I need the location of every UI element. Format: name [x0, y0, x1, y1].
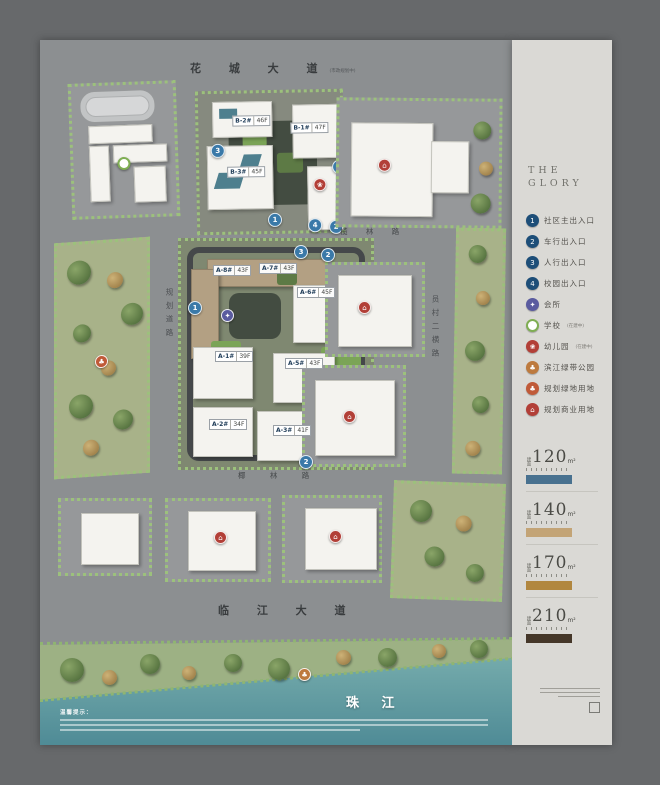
area-caption-dots	[526, 468, 570, 471]
disclaimer-line	[60, 724, 488, 726]
building	[351, 122, 434, 217]
building-label-chip: A-8#43F	[213, 265, 251, 276]
commercial-icon: ⌂	[329, 530, 342, 543]
building-label-chip: B-3#45F	[227, 166, 266, 178]
building	[88, 124, 153, 144]
disclaimer-heading: 温馨提示：	[60, 708, 492, 716]
divider	[526, 544, 598, 545]
footnote-line	[558, 696, 600, 698]
disclaimer-line	[60, 729, 360, 731]
tree	[465, 341, 485, 361]
building	[89, 146, 111, 203]
legend-icon-kindergarten: ❀	[526, 340, 539, 353]
building	[81, 513, 139, 565]
area-color-bar	[526, 634, 572, 643]
school-icon	[117, 157, 130, 170]
legend-item: 1 社区主出入口	[526, 210, 595, 231]
track-infield	[85, 95, 150, 117]
area-prefix: 建面	[526, 563, 531, 572]
tree	[121, 302, 143, 326]
tree	[476, 291, 490, 305]
building-label-chip: A-7#43F	[259, 263, 297, 274]
brand-line1: THE	[528, 164, 583, 177]
tree	[67, 260, 91, 286]
tree	[465, 441, 480, 456]
building-label-chip: A-2#34F	[209, 419, 247, 430]
tree	[336, 650, 351, 665]
disclaimer-text: 温馨提示：	[60, 708, 492, 731]
south-block-4	[390, 480, 506, 602]
tree	[83, 439, 99, 456]
area-value: 210	[532, 608, 567, 625]
entrance-badge: 1	[268, 213, 282, 227]
commercial-icon: ⌂	[378, 159, 391, 172]
legend-item: 3 人行出入口	[526, 252, 595, 273]
commercial-icon: ⌂	[358, 301, 371, 314]
commercial-icon: ⌂	[214, 531, 227, 544]
green-sliver-block	[452, 228, 506, 475]
school-block	[68, 80, 181, 220]
clubhouse-icon: ✦	[221, 309, 234, 322]
tree	[471, 193, 491, 213]
area-color-bar	[526, 475, 572, 484]
south-block-3: ⌂	[282, 495, 382, 583]
riverside-park-icon: ♣	[298, 668, 311, 681]
building-label-chip: A-6#45F	[297, 287, 335, 298]
green-park-block: ♣	[54, 237, 150, 480]
area-value: 120	[532, 449, 567, 466]
tree	[102, 670, 117, 685]
legend-note: (在建中)	[576, 344, 593, 350]
legend-list: 1 社区主出入口 2 车行出入口 3 人行出入口 4 校园出入口 ✦ 会所 学校	[526, 210, 595, 420]
area-prefix: 建面	[526, 616, 531, 625]
building-label-chip: B-1#47F	[290, 122, 329, 134]
area-color-bar	[526, 528, 572, 537]
building-label-chip: A-1#39F	[215, 351, 253, 362]
brand-logo: THE GLORY	[528, 164, 583, 190]
area-caption-dots	[526, 521, 570, 524]
road-label-planned-road: 规划道路	[164, 288, 175, 342]
commercial-icon: ⌂	[343, 410, 356, 423]
road-name: 花 城 大 道	[190, 62, 330, 75]
legend-icon-campus-entrance: 4	[526, 277, 539, 290]
tree	[378, 648, 397, 667]
building-label-chip: A-3#41F	[273, 425, 311, 436]
legend-item: ✦ 会所	[526, 294, 595, 315]
commercial-block-e2: ⌂	[302, 365, 406, 467]
legend-item: 2 车行出入口	[526, 231, 595, 252]
legend-label: 滨江绿带公园	[544, 362, 595, 373]
residential-block-b: B-2#46F B-1#47F B-3#45F 3 3 1 4 2 ❀	[195, 89, 345, 236]
tree	[182, 666, 196, 680]
master-plan-map: 花 城 大 道(市政规划中)	[40, 40, 512, 745]
tree	[432, 644, 446, 658]
legend-panel: THE GLORY 1 社区主出入口 2 车行出入口 3 人行出入口 4 校园出…	[512, 40, 612, 745]
entrance-badge: 3	[294, 245, 308, 259]
commercial-block-ne: ⌂	[335, 97, 502, 228]
legend-label: 社区主出入口	[544, 215, 595, 226]
road-label-huacheng-avenue: 花 城 大 道(市政规划中)	[190, 60, 356, 76]
area-item-120: 建面 120 m²	[526, 446, 598, 492]
legend-label: 车行出入口	[544, 236, 587, 247]
area-caption-dots	[526, 627, 570, 630]
road-label-linjiang-avenue: 临 江 大 道	[218, 602, 358, 618]
tree	[224, 654, 242, 672]
legend-item: ♣ 滨江绿带公园	[526, 357, 595, 378]
tree	[107, 272, 123, 289]
road-label-yuancun: 员村二横路	[430, 295, 441, 363]
legend-item: ❀ 幼儿园 (在建中)	[526, 336, 595, 357]
tree	[60, 658, 84, 682]
area-unit: m²	[567, 564, 575, 571]
area-item-140: 建面 140 m²	[526, 499, 598, 545]
legend-label: 规划商业用地	[544, 404, 595, 415]
tree	[424, 546, 445, 567]
divider	[526, 597, 598, 598]
building	[431, 141, 469, 193]
tree	[466, 564, 485, 583]
legend-label: 幼儿园	[544, 341, 570, 352]
entrance-badge: 1	[188, 301, 202, 315]
legend-note: (在建中)	[567, 323, 584, 329]
footnote-line	[540, 692, 600, 694]
area-unit: m²	[567, 511, 575, 518]
road-note: (市政规划中)	[330, 69, 356, 74]
building	[338, 275, 412, 347]
legend-icon-clubhouse: ✦	[526, 298, 539, 311]
tree	[73, 324, 91, 343]
entrance-badge: 2	[299, 455, 313, 469]
panel-footnote	[530, 685, 600, 713]
legend-icon-riverside-park: ♣	[526, 361, 539, 374]
south-block-2: ⌂	[165, 498, 271, 582]
area-value: 170	[532, 555, 567, 572]
seal-icon	[589, 702, 600, 713]
area-item-210: 建面 210 m²	[526, 605, 598, 643]
legend-item: ♣ 规划绿地用地	[526, 378, 595, 399]
building	[134, 166, 167, 203]
road-label-inner-south: 椰 林 路	[238, 470, 320, 481]
area-caption-dots	[526, 574, 570, 577]
entrance-badge: 4	[308, 218, 322, 232]
tower-a2	[193, 407, 253, 457]
tree	[469, 245, 487, 263]
tree	[479, 162, 493, 176]
legend-label: 会所	[544, 299, 561, 310]
commercial-block-e1: ⌂	[325, 262, 425, 357]
divider	[526, 491, 598, 492]
brand-line2: GLORY	[528, 177, 583, 190]
glass-roof	[240, 154, 262, 166]
building-label-chip: B-2#46F	[232, 115, 271, 127]
building-label-chip: A-5#43F	[285, 358, 323, 369]
tree	[473, 121, 491, 139]
legend-icon-main-entrance: 1	[526, 214, 539, 227]
area-prefix: 建面	[526, 457, 531, 466]
legend-label: 规划绿地用地	[544, 383, 595, 394]
disclaimer-line	[60, 719, 488, 721]
legend-label: 校园出入口	[544, 278, 587, 289]
road-label-inner-north: 榄 林 路	[340, 226, 407, 237]
legend-icon-vehicle-entrance: 2	[526, 235, 539, 248]
running-track	[79, 89, 156, 124]
tree	[472, 396, 489, 413]
area-prefix: 建面	[526, 510, 531, 519]
footnote-line	[540, 688, 600, 690]
legend-icon-commercial-land: ⌂	[526, 403, 539, 416]
entrance-badge: 2	[321, 248, 335, 262]
site-plan-poster: 花 城 大 道(市政规划中)	[0, 0, 660, 785]
tree	[410, 500, 433, 523]
legend-icon-pedestrian-entrance: 3	[526, 256, 539, 269]
legend-icon-school	[526, 319, 539, 332]
legend-item: ⌂ 规划商业用地	[526, 399, 595, 420]
legend-label: 学校	[544, 320, 561, 331]
tree	[268, 658, 290, 680]
south-block-1	[58, 498, 152, 576]
unit-area-list: 建面 120 m² 建面 140 m² 建面	[526, 446, 598, 643]
area-unit: m²	[567, 617, 575, 624]
area-color-bar	[526, 581, 572, 590]
legend-icon-green-land: ♣	[526, 382, 539, 395]
tree	[69, 394, 93, 420]
area-item-170: 建面 170 m²	[526, 552, 598, 598]
tree	[455, 515, 472, 532]
legend-item: 学校 (在建中)	[526, 315, 595, 336]
area-value: 140	[532, 502, 567, 519]
area-unit: m²	[567, 458, 575, 465]
central-garden	[229, 293, 281, 339]
tree	[470, 640, 488, 658]
tree	[113, 409, 133, 430]
legend-item: 4 校园出入口	[526, 273, 595, 294]
legend-label: 人行出入口	[544, 257, 587, 268]
tree	[140, 654, 160, 674]
